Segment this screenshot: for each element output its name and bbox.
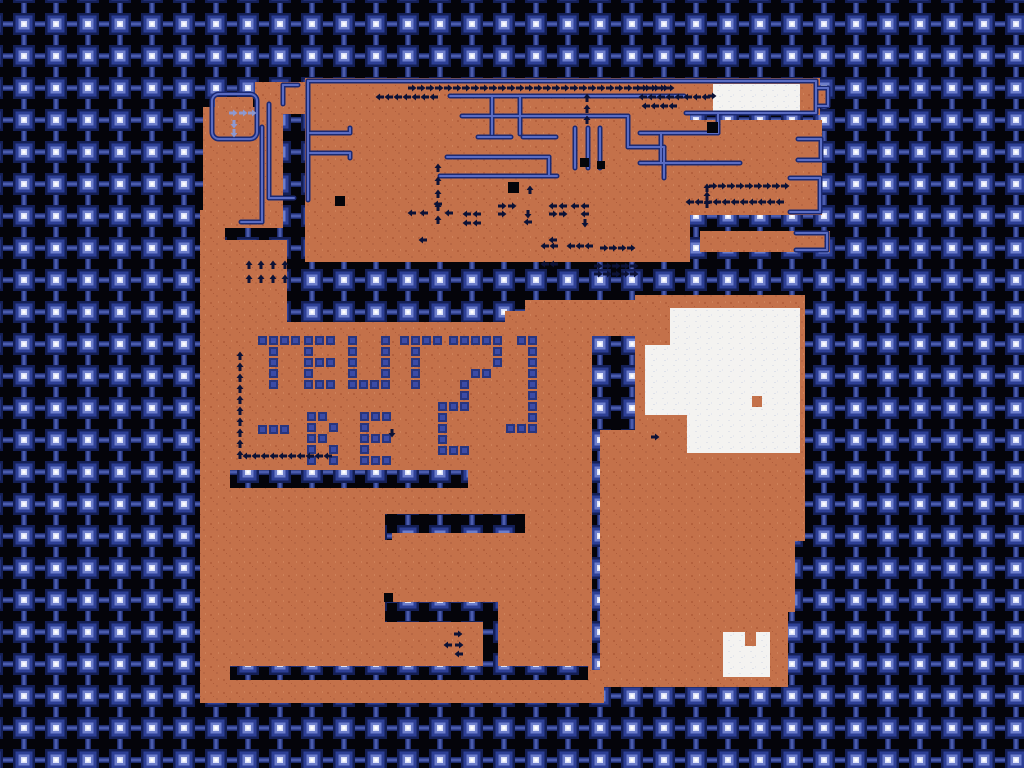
game-screen[interactable]: TEUT -RE — [0, 0, 1024, 768]
game-map[interactable] — [0, 0, 1024, 768]
